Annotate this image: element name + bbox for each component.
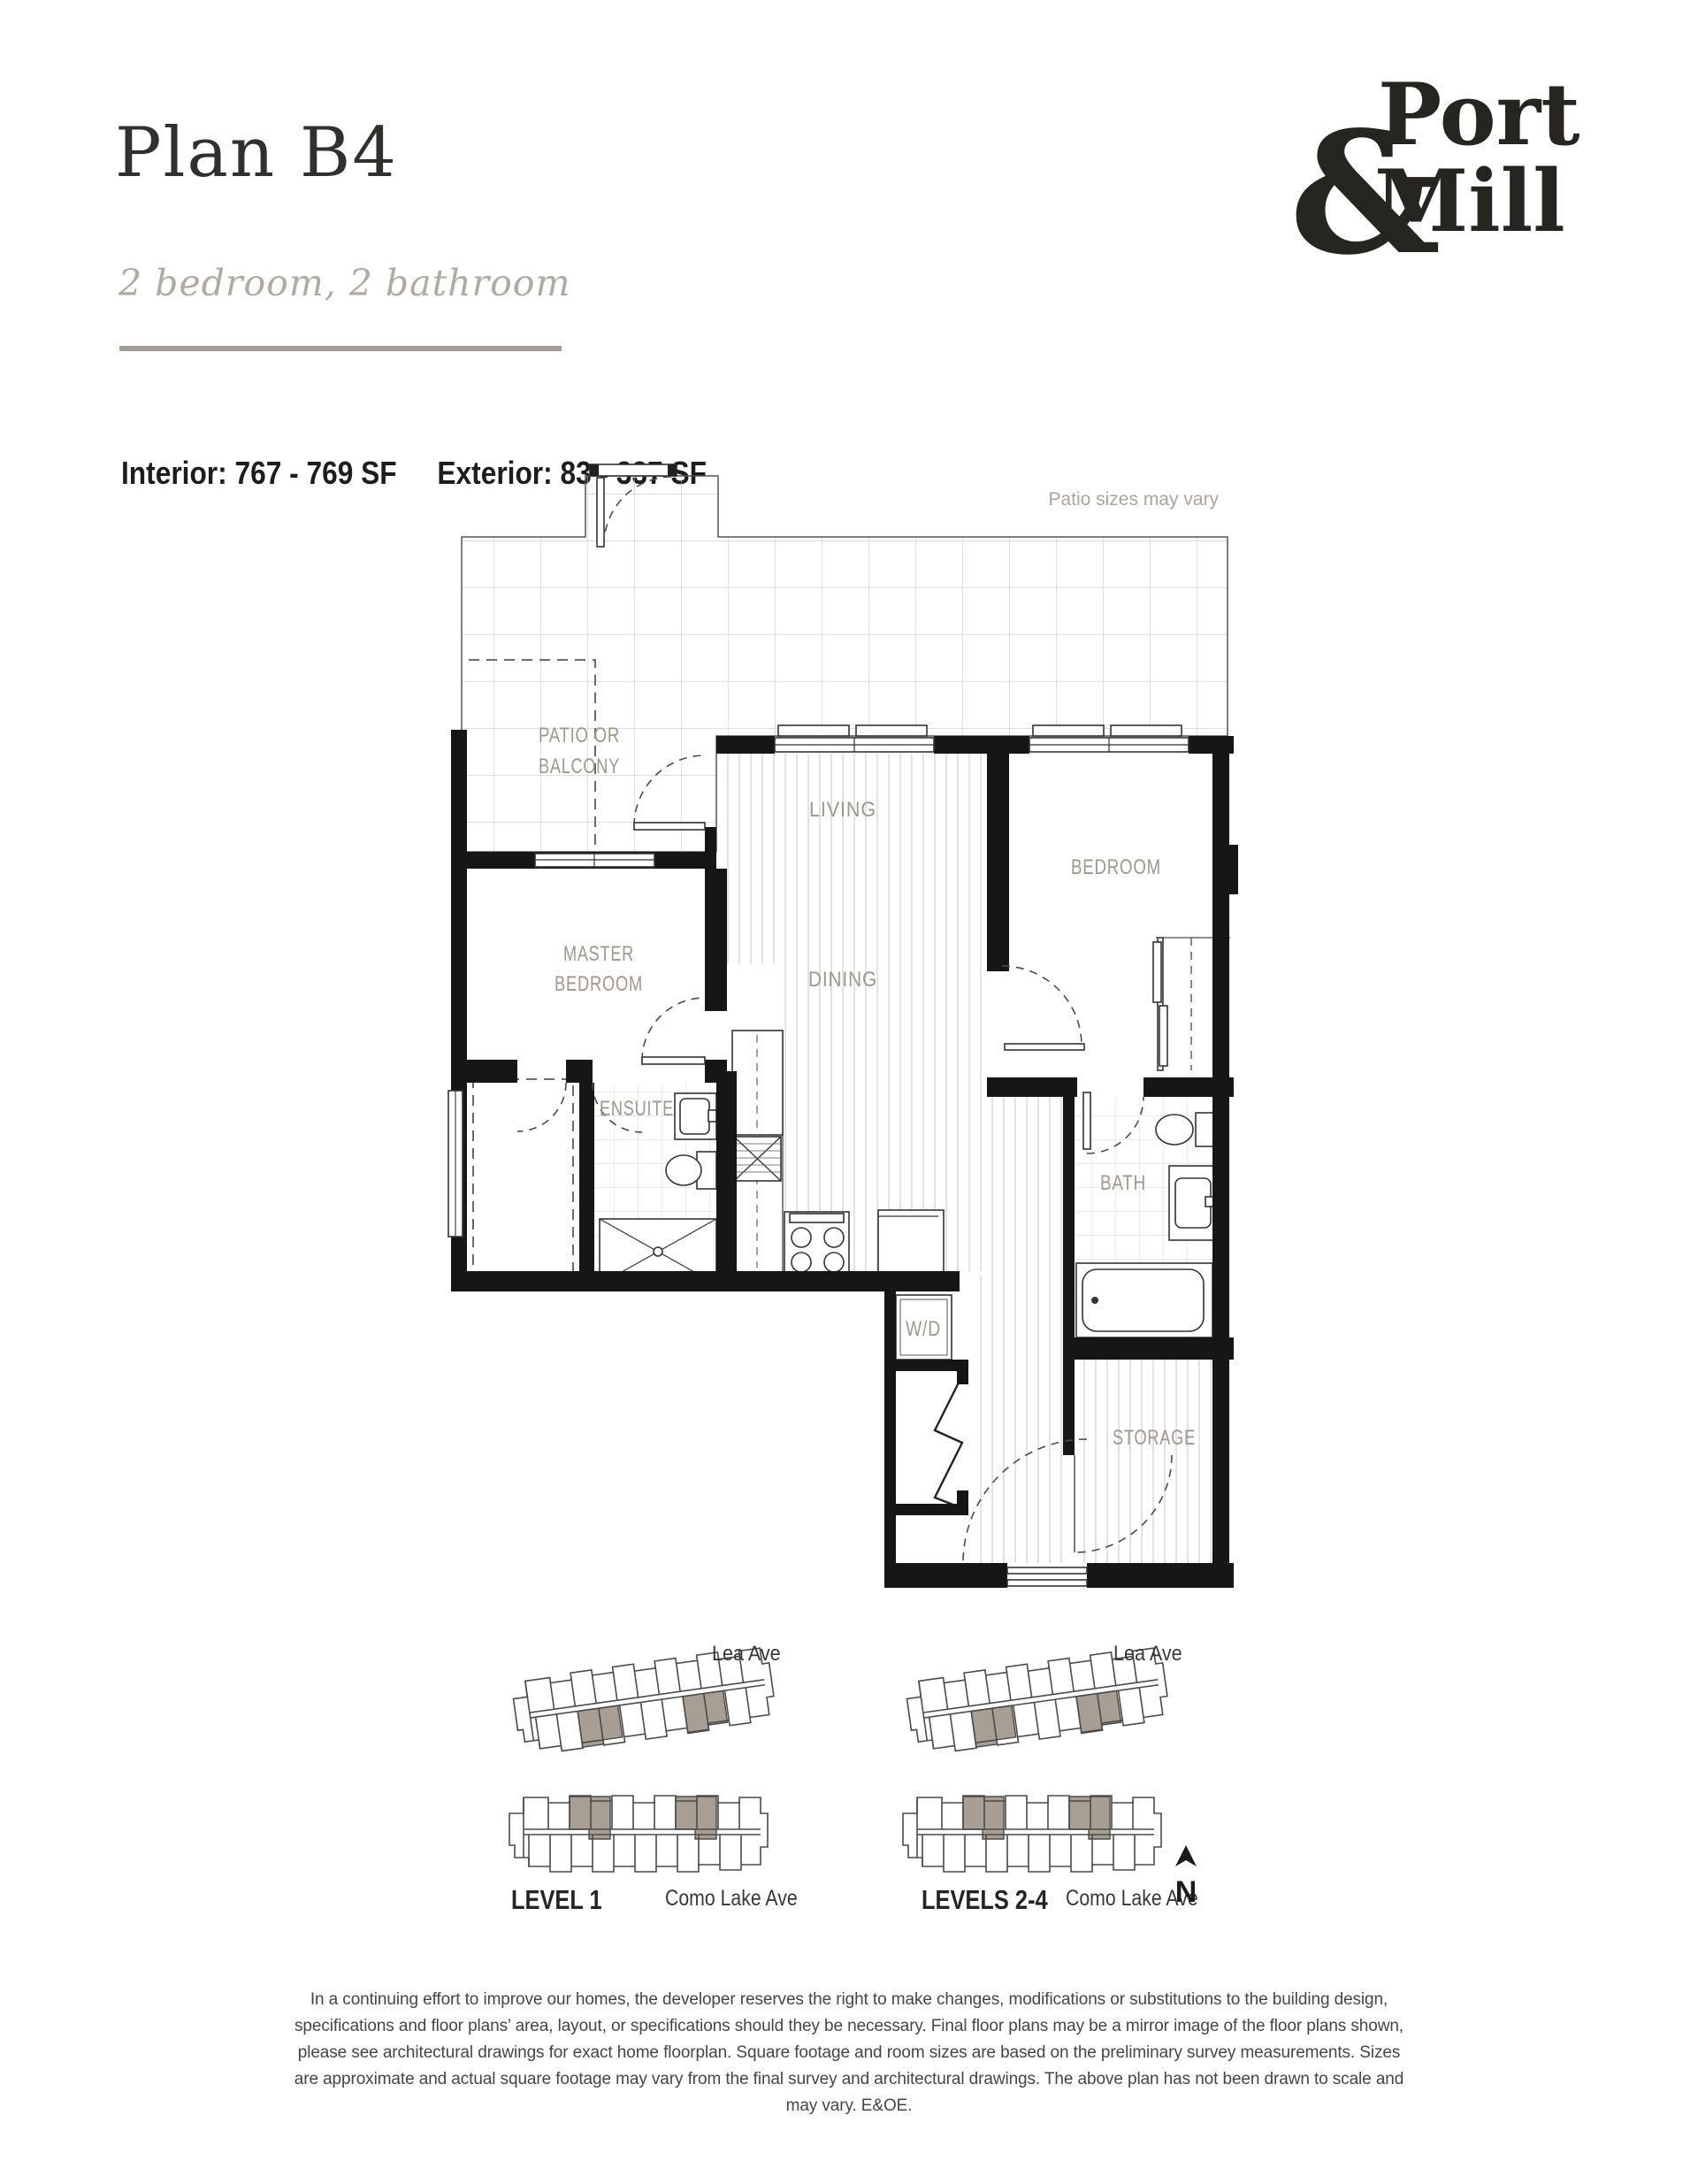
street-label-como-left: Como Lake Ave [665, 1886, 798, 1912]
page-subtitle: 2 bedroom, 2 bathroom [119, 262, 570, 304]
gate-frame [590, 464, 677, 476]
lower-patio-dashed [473, 1079, 573, 1276]
highlighted-unit [676, 1797, 716, 1839]
highlighted-unit [1069, 1797, 1110, 1839]
bedroom-door-leaf [1005, 1044, 1084, 1050]
label-living: LIVING [809, 798, 876, 822]
keyplan-levels24-angled [896, 1615, 1179, 1783]
header-divider [119, 346, 562, 351]
floorplan-drawing: Patio sizes may vary PATIO OR BALCONY LI… [447, 447, 1238, 1592]
master-door-leaf [642, 1057, 705, 1064]
bifold-closet-doors [935, 1376, 962, 1508]
keyplan-level1 [506, 1783, 771, 1881]
disclaimer-text: In a continuing effort to improve our ho… [290, 1987, 1409, 2119]
lower-patio-door-swing [517, 1083, 566, 1131]
highlighted-unit [1076, 1690, 1121, 1732]
highlighted-unit [570, 1797, 610, 1839]
label-master-1: MASTER [563, 942, 634, 966]
label-bath: BATH [1100, 1171, 1146, 1195]
highlighted-unit [683, 1690, 728, 1732]
label-wd: W/D [906, 1317, 941, 1341]
keyplan-levels24 [899, 1783, 1165, 1881]
bath-toilet [1156, 1115, 1193, 1145]
label-patio-2: BALCONY [539, 755, 620, 778]
street-label-lea-left: Lea Ave [712, 1642, 781, 1667]
label-bedroom: BEDROOM [1071, 855, 1161, 879]
interior-area: Interior: 767 - 769 SF [121, 455, 397, 491]
label-patio-1: PATIO OR [539, 724, 620, 747]
north-label: N [1175, 1875, 1197, 1909]
patio-door-leaf [634, 823, 705, 830]
gate-door-leaf [597, 478, 604, 547]
page-title: Plan B4 [115, 113, 398, 193]
label-master-2: BEDROOM [555, 972, 643, 996]
bedroom-door-swing [1002, 966, 1082, 1046]
floorplan-sheet: Plan B4 2 bedroom, 2 bathroom Interior: … [0, 0, 1698, 2184]
north-arrow-icon: N [1173, 1845, 1199, 1914]
level-label-2-4: LEVELS 2-4 [922, 1884, 1048, 1916]
label-ensuite: ENSUITE [600, 1097, 674, 1121]
bath-door-leaf [1083, 1092, 1090, 1149]
entry-threshold [1007, 1567, 1087, 1574]
patio-note: Patio sizes may vary [1048, 489, 1219, 510]
brand-logo: & Port Mill [1293, 85, 1611, 306]
level-label-1: LEVEL 1 [511, 1884, 602, 1916]
master-door-swing [642, 998, 705, 1061]
logo-word-mill: Mill [1374, 159, 1565, 244]
street-label-lea-right: Lea Ave [1113, 1642, 1182, 1667]
logo-word-port: Port [1378, 73, 1580, 157]
fridge [878, 1210, 944, 1278]
label-storage: STORAGE [1113, 1426, 1196, 1450]
ensuite-toilet [666, 1155, 701, 1185]
label-dining: DINING [808, 968, 877, 992]
keyplan-level1-angled [502, 1615, 785, 1783]
bath-toilet-tank [1196, 1113, 1213, 1146]
highlighted-unit [963, 1797, 1004, 1839]
